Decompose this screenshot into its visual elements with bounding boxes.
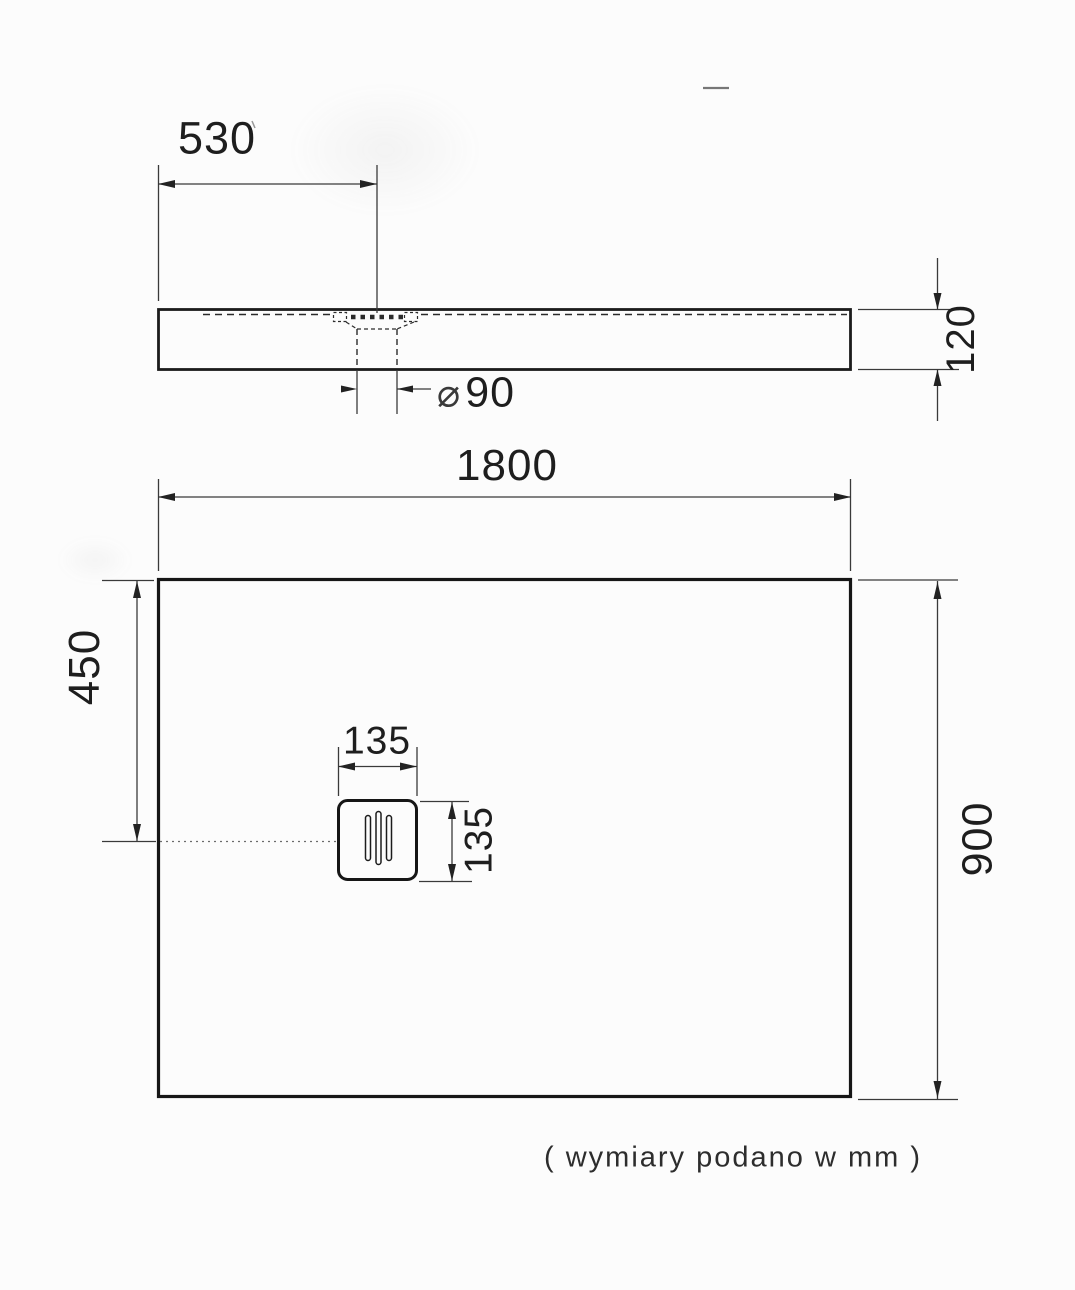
dim-label-135-depth: 135 (460, 806, 499, 874)
dim-label-diameter-90: ⌀90 (437, 372, 515, 415)
arrowhead-up-icon (133, 581, 141, 598)
arrowhead-down-icon (448, 864, 456, 881)
arrowhead-right-icon (834, 493, 851, 501)
arrowhead-up-icon (448, 802, 456, 819)
arrowhead-left-icon (158, 493, 175, 501)
arrowhead-down-icon (934, 1081, 942, 1098)
arrowhead-left-icon (397, 386, 413, 393)
drain-flange-hidden-detail (334, 313, 418, 370)
dim-900 (858, 580, 958, 1100)
dim-450 (102, 581, 156, 842)
dim-label-1800: 1800 (456, 444, 558, 488)
dim-530 (159, 165, 378, 313)
drawing-linework (0, 0, 1075, 1290)
dim-label-135-width: 135 (343, 722, 411, 761)
dim-1800 (159, 479, 851, 571)
plan-view (102, 479, 958, 1100)
plan-view-tray-outline (159, 580, 851, 1097)
technical-drawing-shower-tray: 530 ⌀90 120 1800 450 135 135 900 ( wymia… (0, 0, 1075, 1290)
dim-label-120: 120 (941, 304, 981, 374)
units-caption: ( wymiary podano w mm ) (544, 1142, 922, 1175)
arrowhead-left-icon (338, 763, 355, 771)
arrowhead-right-icon (400, 763, 417, 771)
side-view (158, 165, 959, 421)
arrowhead-right-icon (360, 180, 377, 188)
diameter-symbol-icon: ⌀ (437, 372, 461, 417)
arrowhead-left-icon (158, 180, 175, 188)
diameter-value: 90 (465, 369, 515, 417)
arrowhead-up-icon (934, 582, 942, 599)
arrowhead-down-icon (133, 824, 141, 841)
dim-label-900: 900 (957, 802, 1000, 877)
dim-label-530: 530 (178, 116, 256, 161)
dim-label-450: 450 (63, 629, 107, 705)
side-view-tray-outline (159, 310, 851, 370)
dim-diameter-90 (357, 370, 431, 414)
arrowhead-right-icon (341, 386, 357, 393)
